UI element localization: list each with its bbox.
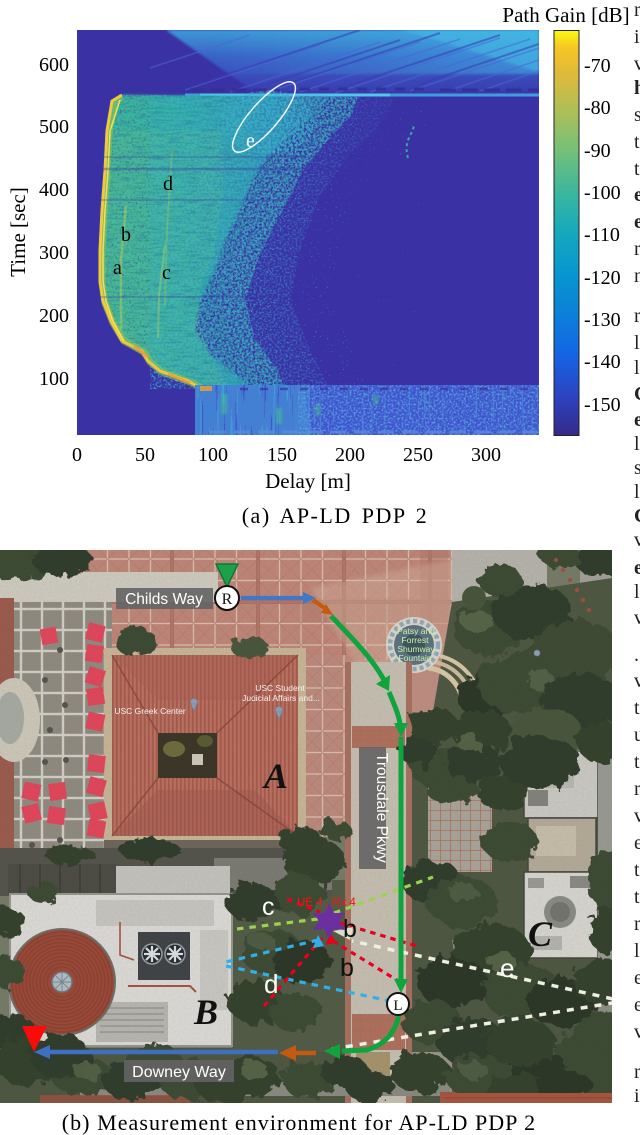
svg-text:r: r xyxy=(634,1061,640,1083)
svg-text:R: R xyxy=(222,591,233,608)
svg-text:l: l xyxy=(634,481,640,503)
svg-text:600: 600 xyxy=(39,54,69,76)
svg-text:USC Student: USC Student xyxy=(255,683,305,693)
svg-text:UE 4 , Rx 4: UE 4 , Rx 4 xyxy=(297,897,356,909)
svg-text:0: 0 xyxy=(72,444,82,466)
svg-text:Path Gain [dB]: Path Gain [dB] xyxy=(502,3,629,27)
svg-text:C: C xyxy=(634,505,640,527)
svg-text:200: 200 xyxy=(335,444,365,466)
svg-text:-100: -100 xyxy=(584,182,621,204)
svg-text:USC Greek Center: USC Greek Center xyxy=(114,706,185,716)
svg-text:l: l xyxy=(634,357,640,379)
svg-text:250: 250 xyxy=(403,444,433,466)
svg-text:-90: -90 xyxy=(584,140,611,162)
svg-text:Time [sec]: Time [sec] xyxy=(6,187,30,277)
svg-text:L: L xyxy=(393,998,402,1014)
svg-text:-120: -120 xyxy=(584,267,621,289)
svg-text:t: t xyxy=(634,886,640,908)
svg-text:r: r xyxy=(634,305,640,327)
svg-text:Judicial Affairs and...: Judicial Affairs and... xyxy=(242,693,320,703)
svg-text:l: l xyxy=(634,433,640,455)
svg-text:c: c xyxy=(262,893,275,921)
svg-text:l: l xyxy=(634,581,640,603)
svg-text:e: e xyxy=(500,953,514,983)
svg-text:e: e xyxy=(634,967,640,989)
svg-text:100: 100 xyxy=(198,444,228,466)
svg-text:c: c xyxy=(162,262,171,284)
svg-text:l: l xyxy=(634,940,640,962)
svg-text:(b) Measurement environment fo: (b) Measurement environment for AP-LD PD… xyxy=(62,1110,536,1135)
svg-text:l: l xyxy=(634,332,640,354)
svg-text:t: t xyxy=(634,131,640,153)
svg-text:A: A xyxy=(262,756,288,796)
svg-text:B: B xyxy=(193,992,218,1032)
svg-text:100: 100 xyxy=(39,368,69,390)
svg-text:300: 300 xyxy=(39,242,69,264)
svg-text:300: 300 xyxy=(471,444,501,466)
svg-text:-140: -140 xyxy=(584,351,621,373)
svg-text:t: t xyxy=(634,158,640,180)
svg-text:e: e xyxy=(246,130,255,152)
svg-text:(a) AP-LD PDP 2: (a) AP-LD PDP 2 xyxy=(242,503,429,528)
svg-text:r: r xyxy=(634,778,640,800)
svg-text:v: v xyxy=(634,529,640,551)
svg-text:v: v xyxy=(634,670,640,692)
svg-text:50: 50 xyxy=(135,444,155,466)
svg-text:Delay [m]: Delay [m] xyxy=(265,469,351,493)
svg-text:-110: -110 xyxy=(584,224,620,246)
svg-text:b: b xyxy=(340,954,354,982)
svg-text:-130: -130 xyxy=(584,309,621,331)
svg-text:i: i xyxy=(634,26,640,48)
svg-text:e: e xyxy=(634,211,640,233)
svg-text:e: e xyxy=(634,184,640,206)
svg-text:Downey Way: Downey Way xyxy=(132,1064,226,1081)
svg-text:h: h xyxy=(634,77,640,99)
svg-text:e: e xyxy=(634,832,640,854)
svg-text:v: v xyxy=(634,805,640,827)
svg-text:v: v xyxy=(634,53,640,75)
svg-text:t: t xyxy=(634,697,640,719)
svg-text:v: v xyxy=(634,1021,640,1043)
svg-text:r: r xyxy=(634,913,640,935)
svg-text:e: e xyxy=(634,409,640,431)
svg-text:-150: -150 xyxy=(584,394,621,416)
svg-text:Fountain: Fountain xyxy=(398,653,431,663)
svg-text:.: . xyxy=(634,644,639,666)
svg-text:400: 400 xyxy=(39,179,69,201)
svg-text:b: b xyxy=(121,224,131,246)
svg-text:d: d xyxy=(264,969,278,999)
svg-text:v: v xyxy=(634,607,640,629)
svg-text:Trousdale Pkwy: Trousdale Pkwy xyxy=(373,753,390,863)
svg-text:500: 500 xyxy=(39,116,69,138)
svg-text:200: 200 xyxy=(39,305,69,327)
svg-text:e: e xyxy=(634,994,640,1016)
svg-text:s: s xyxy=(634,457,640,479)
svg-text:i: i xyxy=(634,1085,640,1107)
svg-text:r: r xyxy=(634,238,640,260)
svg-text:e: e xyxy=(634,557,640,579)
svg-text:t: t xyxy=(634,751,640,773)
svg-text:-80: -80 xyxy=(584,97,611,119)
svg-text:n: n xyxy=(634,265,640,287)
svg-text:t: t xyxy=(634,859,640,881)
svg-text:u: u xyxy=(634,724,640,746)
svg-text:C: C xyxy=(634,383,640,405)
svg-text:C: C xyxy=(528,914,553,954)
svg-text:d: d xyxy=(163,173,173,195)
svg-text:Childs Way: Childs Way xyxy=(125,591,203,608)
svg-text:a: a xyxy=(113,257,122,279)
svg-text:-70: -70 xyxy=(584,55,611,77)
svg-text:s: s xyxy=(634,104,640,126)
svg-text:b: b xyxy=(343,915,357,943)
svg-text:r: r xyxy=(634,0,640,21)
svg-text:150: 150 xyxy=(267,444,297,466)
